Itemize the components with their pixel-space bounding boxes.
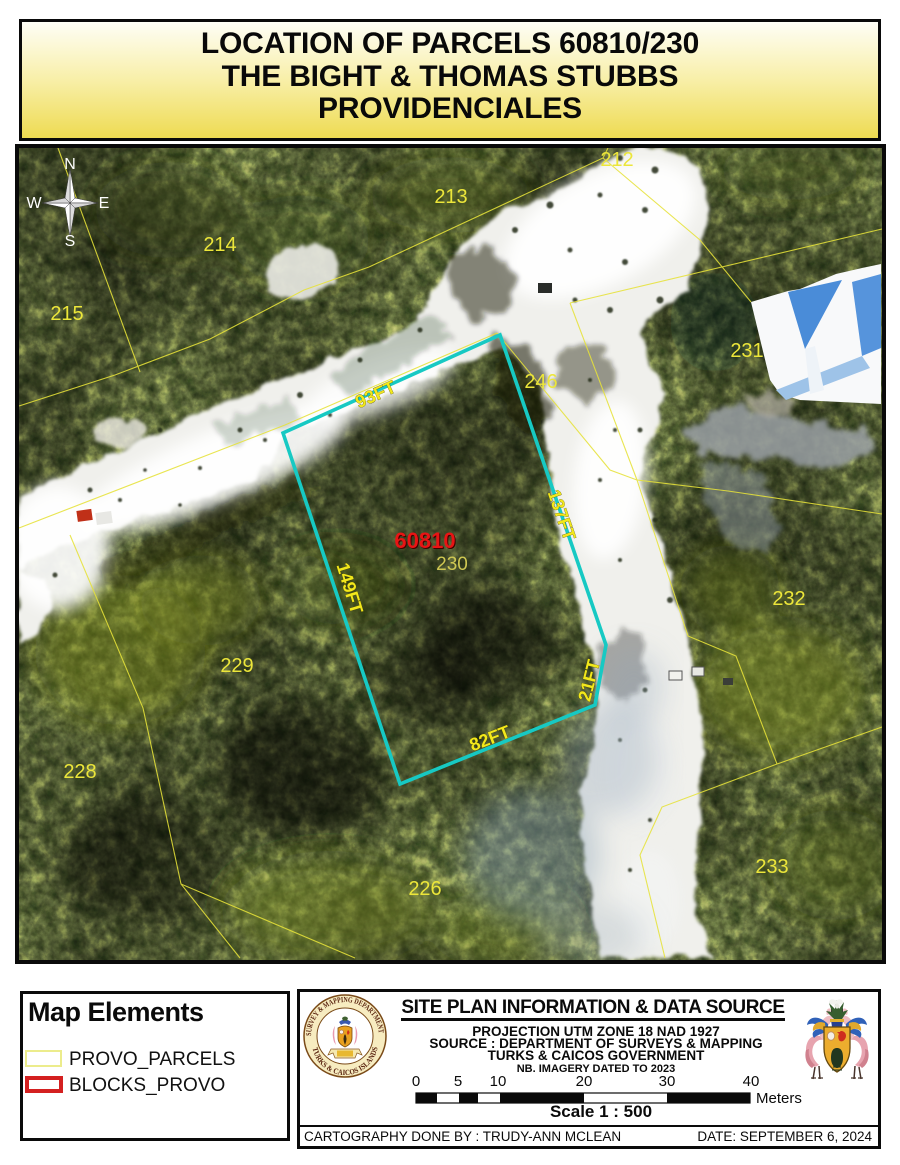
svg-text:213: 213: [434, 186, 467, 208]
svg-text:215: 215: [50, 303, 83, 325]
svg-text:Meters: Meters: [756, 1090, 802, 1107]
svg-text:E: E: [99, 195, 110, 212]
svg-text:231: 231: [730, 340, 763, 362]
svg-text:10: 10: [490, 1073, 507, 1090]
svg-text:228: 228: [63, 761, 96, 783]
svg-text:0: 0: [412, 1073, 420, 1090]
svg-text:N: N: [64, 156, 76, 173]
svg-text:226: 226: [408, 878, 441, 900]
svg-text:20: 20: [576, 1073, 593, 1090]
svg-text:30: 30: [659, 1073, 676, 1090]
svg-text:246: 246: [524, 371, 557, 393]
svg-text:5: 5: [454, 1073, 462, 1090]
svg-text:232: 232: [772, 588, 805, 610]
svg-text:40: 40: [743, 1073, 760, 1090]
svg-text:60810: 60810: [394, 528, 455, 553]
svg-text:229: 229: [220, 655, 253, 677]
svg-text:233: 233: [755, 856, 788, 878]
svg-text:S: S: [65, 233, 76, 250]
svg-text:212: 212: [600, 149, 633, 171]
svg-text:230: 230: [436, 554, 468, 575]
svg-text:Scale 1 : 500: Scale 1 : 500: [550, 1102, 652, 1118]
svg-text:W: W: [26, 195, 42, 212]
svg-text:214: 214: [203, 234, 236, 256]
